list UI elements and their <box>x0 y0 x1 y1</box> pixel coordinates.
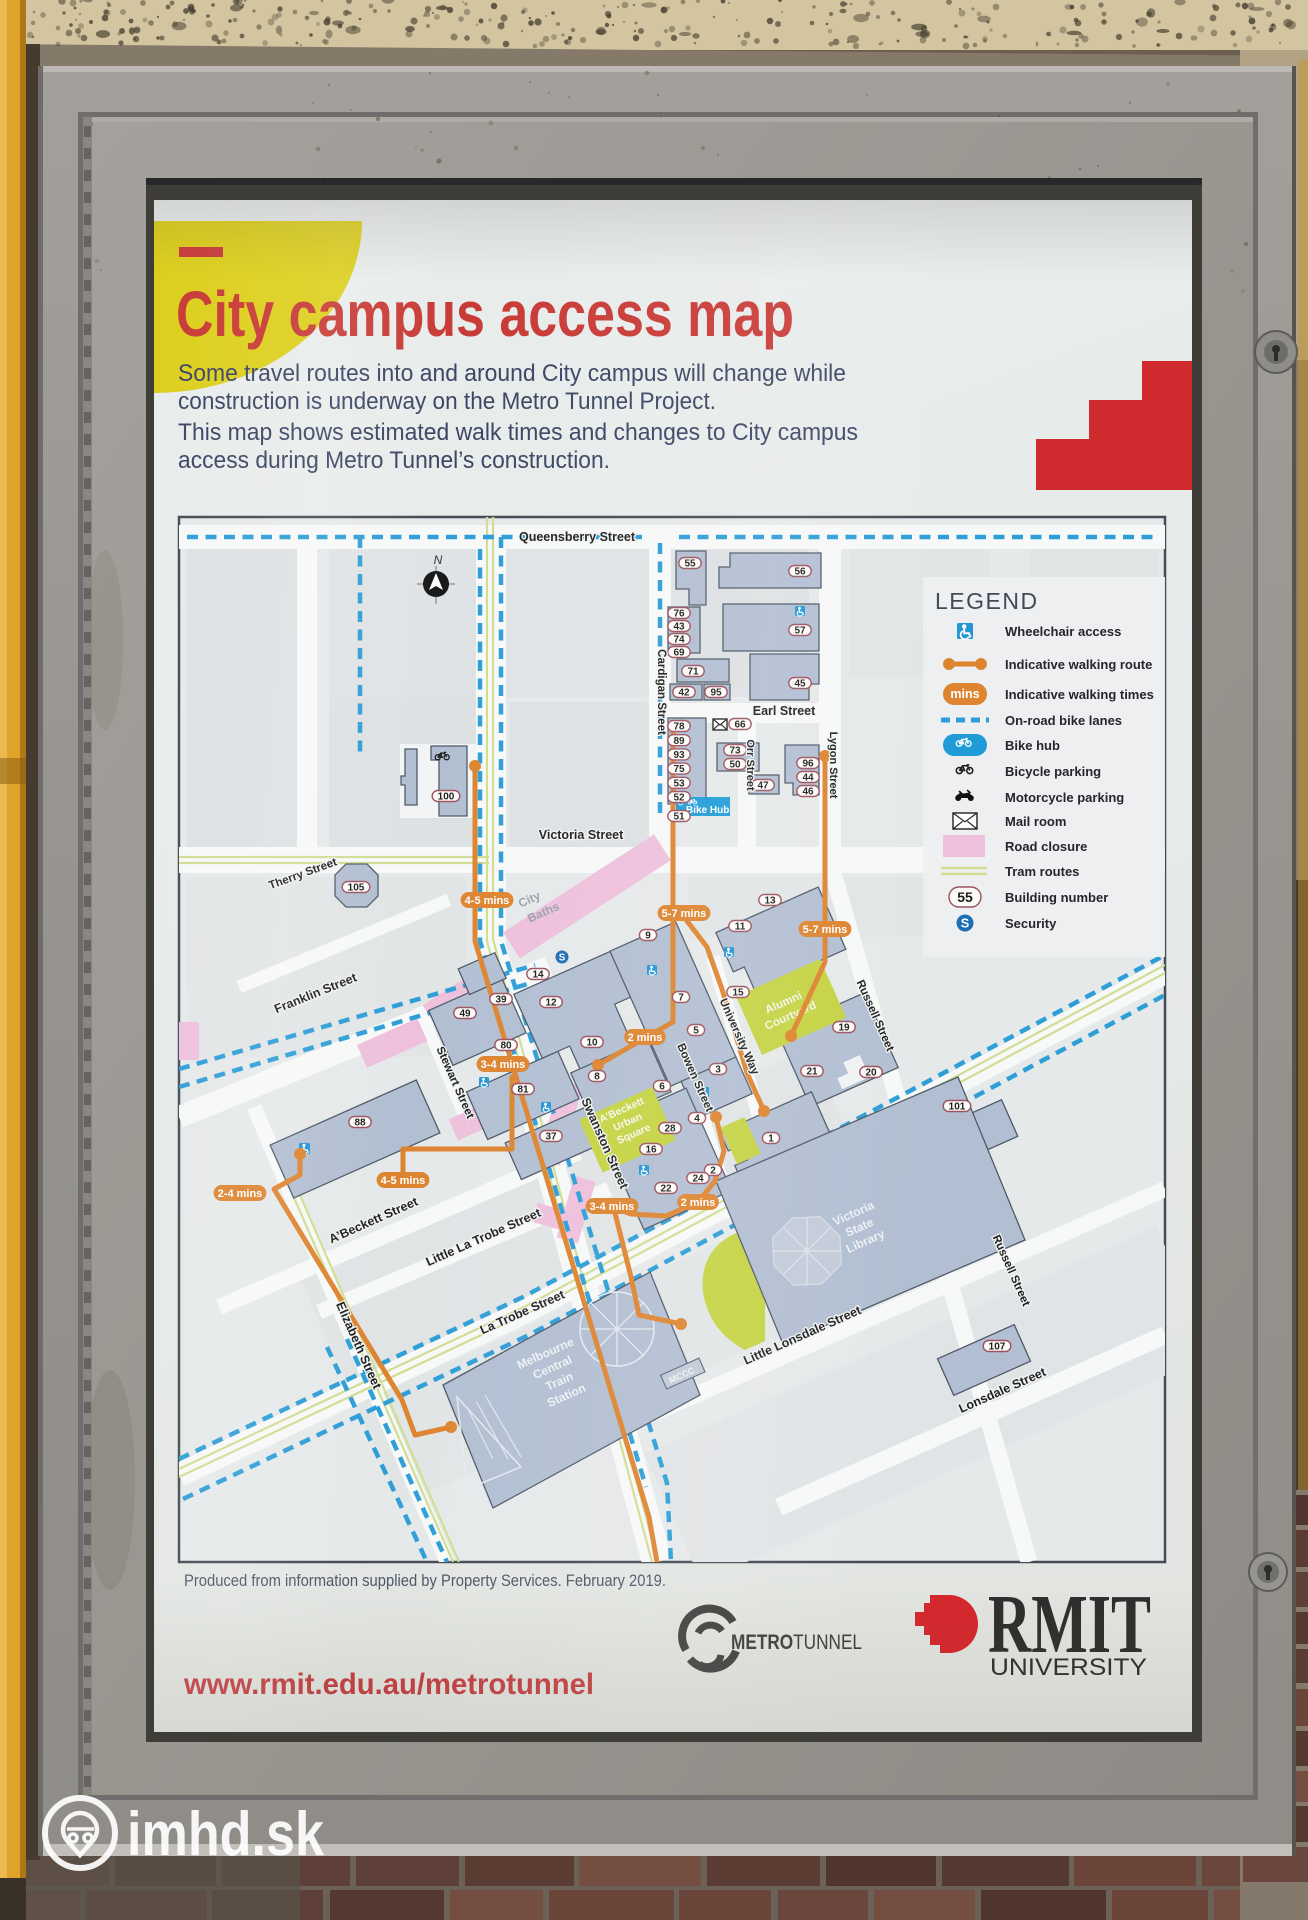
svg-text:imhd.sk: imhd.sk <box>127 1800 324 1869</box>
